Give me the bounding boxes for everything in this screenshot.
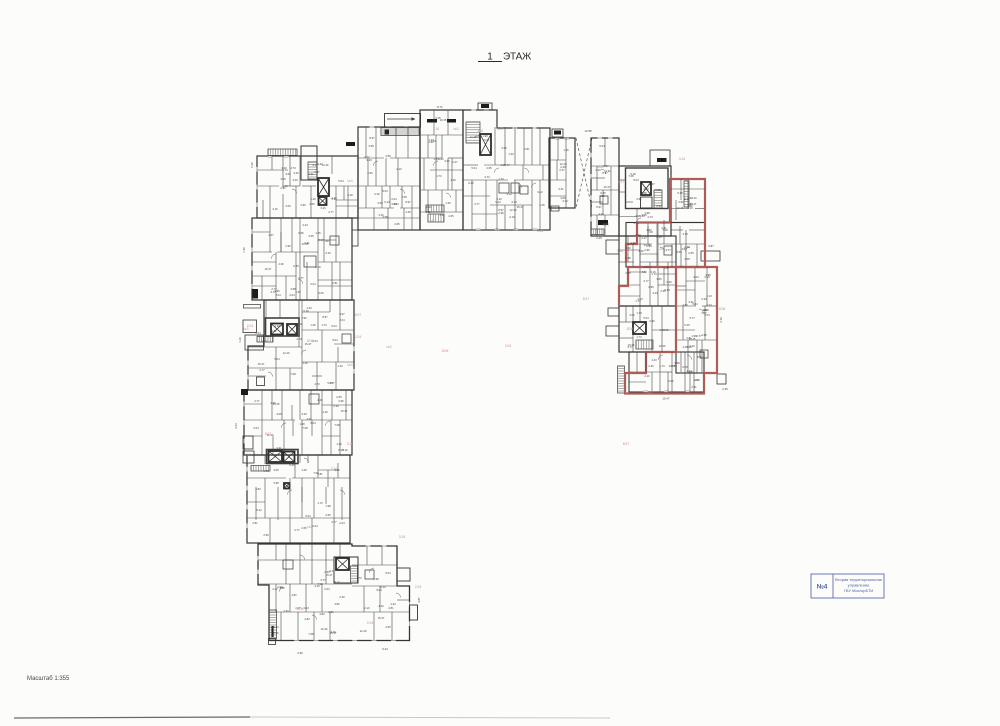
svg-text:2.47: 2.47 [452, 160, 458, 164]
svg-text:2.77: 2.77 [331, 520, 337, 524]
svg-text:2.65: 2.65 [625, 271, 631, 275]
svg-text:3.16: 3.16 [617, 249, 623, 253]
svg-text:3.31: 3.31 [306, 417, 312, 421]
svg-text:10.35: 10.35 [440, 118, 447, 122]
svg-text:2.10: 2.10 [509, 215, 515, 219]
svg-text:2.10: 2.10 [637, 297, 643, 301]
svg-text:10.35: 10.35 [302, 242, 309, 246]
svg-text:4.43: 4.43 [390, 602, 396, 606]
svg-text:2.81: 2.81 [678, 200, 684, 204]
svg-text:3.31: 3.31 [425, 210, 431, 214]
svg-text:3.40: 3.40 [282, 184, 288, 188]
svg-text:8.97: 8.97 [583, 297, 589, 301]
svg-text:4.82: 4.82 [319, 612, 325, 616]
svg-text:3.16: 3.16 [325, 251, 331, 255]
svg-text:2.81: 2.81 [686, 336, 692, 340]
svg-text:2.65: 2.65 [394, 222, 400, 226]
svg-text:12.40: 12.40 [322, 163, 329, 167]
svg-text:3.16: 3.16 [312, 163, 318, 167]
svg-text:7.08: 7.08 [662, 228, 668, 232]
svg-text:2.81: 2.81 [332, 281, 338, 285]
svg-text:4.73: 4.73 [314, 382, 320, 386]
svg-text:7.08: 7.08 [628, 174, 634, 178]
svg-text:3.77: 3.77 [643, 279, 649, 283]
svg-text:2.96: 2.96 [668, 379, 674, 383]
svg-text:2.77: 2.77 [254, 399, 260, 403]
svg-text:5.04: 5.04 [633, 178, 639, 182]
svg-text:3.05: 3.05 [285, 204, 291, 208]
svg-text:3.40: 3.40 [281, 166, 287, 170]
svg-text:1.73: 1.73 [356, 576, 362, 580]
svg-text:15.47: 15.47 [604, 185, 611, 189]
svg-text:4.82: 4.82 [255, 487, 261, 491]
svg-text:№3: №3 [307, 525, 312, 529]
svg-text:10.35: 10.35 [483, 138, 490, 142]
svg-text:2.04: 2.04 [324, 587, 330, 591]
svg-text:6.25: 6.25 [684, 323, 690, 327]
svg-text:3.05: 3.05 [560, 196, 566, 200]
svg-text:№3: №3 [386, 345, 391, 349]
svg-text:1.40: 1.40 [508, 152, 514, 156]
svg-text:8.97: 8.97 [405, 200, 411, 204]
svg-text:15.47: 15.47 [341, 409, 348, 413]
svg-text:2.81: 2.81 [252, 521, 258, 525]
svg-text:2.47: 2.47 [268, 233, 274, 237]
svg-text:15.47: 15.47 [378, 616, 385, 620]
svg-text:1.40: 1.40 [322, 410, 328, 414]
svg-text:2.77: 2.77 [298, 276, 304, 280]
svg-text:15.47: 15.47 [517, 205, 524, 209]
svg-text:2.04: 2.04 [275, 293, 281, 297]
svg-text:3.40: 3.40 [292, 178, 298, 182]
svg-text:3.58: 3.58 [401, 195, 407, 199]
svg-text:4.82: 4.82 [279, 586, 285, 590]
svg-text:8.97: 8.97 [265, 432, 271, 436]
svg-text:2.04: 2.04 [339, 318, 345, 322]
svg-text:5.04: 5.04 [310, 421, 316, 425]
svg-text:12.40: 12.40 [321, 627, 328, 631]
svg-text:2.96: 2.96 [644, 248, 650, 252]
svg-text:4.82: 4.82 [641, 270, 647, 274]
svg-text:3.16: 3.16 [244, 453, 250, 457]
svg-text:№3: №3 [647, 391, 652, 395]
svg-text:5.04: 5.04 [471, 166, 477, 170]
svg-text:ГБУ МосгорБТИ: ГБУ МосгорБТИ [844, 588, 874, 593]
svg-text:7.08: 7.08 [290, 372, 296, 376]
svg-text:3.05: 3.05 [273, 468, 279, 472]
svg-text:8.97: 8.97 [355, 313, 361, 317]
svg-text:1.98: 1.98 [325, 504, 331, 508]
svg-text:3.58: 3.58 [377, 201, 383, 205]
svg-text:2.96: 2.96 [367, 171, 373, 175]
svg-text:3.16: 3.16 [433, 127, 439, 131]
svg-text:3.58: 3.58 [273, 481, 279, 485]
svg-text:1.73: 1.73 [261, 339, 267, 343]
svg-text:2.10: 2.10 [644, 374, 650, 378]
svg-text:3.16: 3.16 [679, 157, 685, 161]
svg-text:3.77: 3.77 [270, 290, 276, 294]
svg-text:2.47: 2.47 [314, 170, 320, 174]
svg-text:9.12: 9.12 [334, 580, 340, 584]
svg-text:4.73: 4.73 [296, 337, 302, 341]
svg-text:2.96: 2.96 [649, 319, 655, 323]
svg-text:5.04: 5.04 [273, 625, 279, 629]
svg-text:5.04: 5.04 [382, 189, 388, 193]
svg-text:1.73: 1.73 [430, 139, 436, 143]
svg-text:5.18: 5.18 [331, 197, 337, 201]
svg-text:6.25: 6.25 [539, 203, 545, 207]
svg-text:7.08: 7.08 [308, 632, 314, 636]
svg-text:1БЖ: 1БЖ [627, 327, 634, 331]
svg-text:1.25: 1.25 [302, 361, 308, 365]
svg-text:7.08: 7.08 [334, 423, 340, 427]
svg-text:ЭТАЖ: ЭТАЖ [503, 52, 532, 63]
svg-text:5.04: 5.04 [376, 588, 382, 592]
svg-text:4.73: 4.73 [263, 469, 269, 473]
svg-text:5.40: 5.40 [250, 162, 254, 168]
svg-text:2.81: 2.81 [388, 606, 394, 610]
svg-text:2.77: 2.77 [294, 528, 300, 532]
svg-text:3.31: 3.31 [605, 169, 611, 173]
svg-text:1.40: 1.40 [450, 178, 456, 182]
svg-text:1.98: 1.98 [373, 577, 379, 581]
svg-text:4.82: 4.82 [271, 329, 277, 333]
svg-text:8.97: 8.97 [596, 205, 602, 209]
svg-text:3.40: 3.40 [635, 233, 641, 237]
svg-text:3.05: 3.05 [635, 214, 641, 218]
svg-text:2.04: 2.04 [310, 282, 316, 286]
svg-text:3.05: 3.05 [318, 291, 324, 295]
svg-text:8.97: 8.97 [322, 315, 328, 319]
svg-text:1.25: 1.25 [405, 210, 411, 214]
svg-text:3.16: 3.16 [320, 206, 326, 210]
svg-text:№4: №4 [817, 584, 828, 591]
svg-text:2.65: 2.65 [630, 241, 636, 245]
svg-text:3.58: 3.58 [385, 154, 391, 158]
svg-text:1.73: 1.73 [636, 311, 642, 315]
svg-text:4.43: 4.43 [302, 223, 308, 227]
svg-text:3.87: 3.87 [708, 244, 714, 248]
svg-text:9.12: 9.12 [537, 190, 543, 194]
svg-text:1БЖ: 1БЖ [307, 339, 314, 343]
svg-text:2.30: 2.30 [324, 570, 330, 574]
svg-text:3.40: 3.40 [293, 171, 299, 175]
svg-text:7.40: 7.40 [242, 247, 246, 253]
svg-text:8.97: 8.97 [369, 136, 375, 140]
svg-text:№3: №3 [347, 363, 352, 367]
svg-text:2.30: 2.30 [333, 404, 339, 408]
svg-text:2.96: 2.96 [648, 285, 654, 289]
svg-text:6.23: 6.23 [382, 647, 388, 651]
svg-text:2.04: 2.04 [355, 335, 361, 339]
svg-text:2.77: 2.77 [328, 210, 334, 214]
svg-text:1.98: 1.98 [482, 134, 488, 138]
svg-text:3.16: 3.16 [496, 197, 502, 201]
svg-text:3.16: 3.16 [506, 192, 512, 196]
svg-text:1.98: 1.98 [625, 256, 631, 260]
svg-text:1.25: 1.25 [336, 442, 342, 446]
svg-text:4.73: 4.73 [643, 187, 649, 191]
svg-text:5.04: 5.04 [692, 302, 698, 306]
svg-text:2.30: 2.30 [560, 165, 566, 169]
svg-text:8.97: 8.97 [603, 164, 609, 168]
svg-text:3.16: 3.16 [657, 247, 663, 251]
svg-text:3.16: 3.16 [537, 229, 543, 233]
svg-text:1.73: 1.73 [636, 335, 642, 339]
svg-text:2.65: 2.65 [309, 202, 315, 206]
svg-text:2.10: 2.10 [396, 167, 402, 171]
svg-text:3.63: 3.63 [234, 423, 238, 429]
svg-text:4.73: 4.73 [633, 221, 639, 225]
svg-text:6.25: 6.25 [468, 181, 474, 185]
svg-text:3.31: 3.31 [558, 187, 564, 191]
svg-text:2.04: 2.04 [247, 324, 253, 328]
svg-text:3.31: 3.31 [308, 172, 314, 176]
svg-text:2.47: 2.47 [687, 202, 693, 206]
svg-text:управление: управление [848, 583, 871, 588]
svg-text:2.04: 2.04 [367, 621, 373, 625]
svg-text:12.40: 12.40 [360, 629, 367, 633]
svg-text:3.16: 3.16 [399, 535, 405, 539]
svg-text:4.82: 4.82 [646, 228, 652, 232]
svg-text:5.04: 5.04 [643, 316, 649, 320]
svg-text:2.77: 2.77 [259, 368, 265, 372]
svg-text:6.25: 6.25 [682, 365, 688, 369]
svg-text:6.25: 6.25 [289, 463, 295, 467]
svg-text:1.98: 1.98 [644, 211, 650, 215]
svg-text:2.30: 2.30 [648, 364, 654, 368]
svg-text:2.96: 2.96 [501, 146, 507, 150]
svg-text:1: 1 [487, 52, 493, 63]
svg-text:3.16: 3.16 [342, 448, 348, 452]
svg-text:3.31: 3.31 [687, 196, 693, 200]
svg-text:2.30: 2.30 [278, 262, 284, 266]
svg-text:3.05: 3.05 [280, 177, 286, 181]
svg-text:2.04: 2.04 [255, 331, 261, 335]
svg-text:3.77: 3.77 [320, 578, 326, 582]
svg-text:2.96: 2.96 [338, 399, 344, 403]
svg-text:2.47: 2.47 [272, 587, 278, 591]
svg-text:4.43: 4.43 [652, 291, 658, 295]
svg-text:№3: №3 [347, 179, 352, 183]
svg-text:2.96: 2.96 [263, 533, 269, 537]
svg-text:3.77: 3.77 [689, 316, 695, 320]
svg-text:1.98: 1.98 [701, 333, 707, 337]
svg-text:6.25: 6.25 [600, 191, 606, 195]
svg-text:3.05: 3.05 [656, 277, 662, 281]
svg-text:2.04: 2.04 [427, 219, 433, 223]
svg-text:1.40: 1.40 [693, 378, 699, 382]
svg-text:2.77: 2.77 [504, 163, 510, 167]
svg-text:4.82: 4.82 [334, 602, 340, 606]
svg-text:2.81: 2.81 [688, 370, 694, 374]
svg-text:1.73: 1.73 [321, 323, 327, 327]
svg-text:1.25: 1.25 [301, 468, 307, 472]
svg-text:4.43: 4.43 [598, 212, 604, 216]
svg-text:3.31: 3.31 [439, 213, 445, 217]
svg-text:2.96: 2.96 [301, 316, 307, 320]
svg-text:2.04: 2.04 [391, 197, 397, 201]
svg-text:2.10: 2.10 [687, 206, 693, 210]
svg-text:3.40: 3.40 [682, 345, 688, 349]
svg-text:2.47: 2.47 [641, 236, 647, 240]
svg-text:8.97: 8.97 [603, 223, 609, 227]
svg-text:3.31: 3.31 [276, 446, 282, 450]
svg-text:6.25: 6.25 [293, 264, 299, 268]
svg-text:3.77: 3.77 [278, 324, 284, 328]
svg-text:7.08: 7.08 [641, 191, 647, 195]
svg-text:10.35: 10.35 [628, 343, 635, 347]
svg-text:2.30: 2.30 [374, 192, 380, 196]
svg-text:3.16: 3.16 [331, 467, 337, 471]
svg-text:2.30: 2.30 [660, 289, 666, 293]
svg-text:15.47: 15.47 [258, 362, 265, 366]
svg-text:2.10: 2.10 [426, 205, 432, 209]
svg-text:3.58: 3.58 [368, 144, 374, 148]
svg-text:5.18: 5.18 [303, 309, 309, 313]
svg-text:1.73: 1.73 [498, 177, 504, 181]
svg-text:5.04: 5.04 [305, 514, 311, 518]
svg-text:1.40: 1.40 [663, 266, 669, 270]
svg-text:1БЖ: 1БЖ [719, 307, 726, 311]
svg-text:2.04: 2.04 [339, 521, 345, 525]
svg-text:8.97: 8.97 [498, 208, 504, 212]
svg-text:12.40: 12.40 [283, 351, 290, 355]
svg-text:10.35: 10.35 [644, 243, 651, 247]
svg-text:3.40: 3.40 [314, 584, 320, 588]
svg-text:2.65: 2.65 [325, 513, 331, 517]
svg-text:3.40: 3.40 [301, 412, 307, 416]
svg-text:2.65: 2.65 [385, 625, 391, 629]
svg-text:8.97: 8.97 [318, 238, 324, 242]
svg-text:8.97: 8.97 [656, 204, 662, 208]
svg-text:2.29: 2.29 [596, 236, 602, 240]
svg-text:Масштаб 1:355: Масштаб 1:355 [27, 676, 70, 682]
svg-text:2.04: 2.04 [312, 524, 318, 528]
svg-text:5.04: 5.04 [331, 324, 337, 328]
svg-text:5.18: 5.18 [656, 235, 662, 239]
svg-text:10.35: 10.35 [677, 206, 684, 210]
svg-text:1БЖ: 1БЖ [597, 165, 604, 169]
svg-text:15.47: 15.47 [663, 397, 670, 401]
svg-text:3.16: 3.16 [704, 275, 710, 279]
svg-text:4.82: 4.82 [291, 593, 297, 597]
svg-text:3.16: 3.16 [477, 129, 483, 133]
svg-text:4.73: 4.73 [682, 232, 688, 236]
svg-text:1.40: 1.40 [310, 197, 316, 201]
svg-text:3.40: 3.40 [366, 158, 372, 162]
svg-text:4.73: 4.73 [511, 200, 517, 204]
svg-text:2.10: 2.10 [706, 294, 712, 298]
svg-text:3.05: 3.05 [308, 234, 314, 238]
svg-text:10.35: 10.35 [273, 402, 280, 406]
svg-text:1.98: 1.98 [299, 422, 305, 426]
svg-text:3.05: 3.05 [276, 460, 282, 464]
svg-text:3.77: 3.77 [665, 248, 671, 252]
svg-text:4.43: 4.43 [703, 308, 709, 312]
svg-text:4.82: 4.82 [438, 157, 444, 161]
svg-text:2.81: 2.81 [328, 610, 334, 614]
svg-text:7.08: 7.08 [323, 239, 329, 243]
svg-text:2.47: 2.47 [649, 182, 655, 186]
svg-text:2.65: 2.65 [301, 526, 307, 530]
svg-text:5.04: 5.04 [599, 144, 605, 148]
svg-text:2.30: 2.30 [283, 609, 289, 613]
svg-text:2.04: 2.04 [393, 202, 399, 206]
svg-text:2.04: 2.04 [505, 344, 511, 348]
svg-text:1.40: 1.40 [337, 364, 343, 368]
svg-text:2.04: 2.04 [704, 313, 710, 317]
svg-text:1.10: 1.10 [238, 337, 242, 343]
svg-text:8.97: 8.97 [618, 180, 624, 184]
svg-text:6.25: 6.25 [298, 231, 304, 235]
svg-text:2.10: 2.10 [297, 322, 303, 326]
svg-text:1.73: 1.73 [659, 364, 665, 368]
svg-text:Вторая территориальная: Вторая территориальная [835, 577, 882, 582]
svg-text:№3: №3 [453, 127, 458, 131]
svg-text:2.30: 2.30 [684, 245, 690, 249]
svg-text:15.47: 15.47 [265, 267, 272, 271]
svg-text:12.40: 12.40 [659, 344, 666, 348]
svg-text:2.96: 2.96 [285, 244, 291, 248]
svg-text:2.65: 2.65 [448, 214, 454, 218]
svg-text:2.36: 2.36 [722, 387, 728, 391]
svg-text:1.40: 1.40 [638, 249, 644, 253]
svg-text:4.43: 4.43 [651, 358, 657, 362]
svg-text:3.40: 3.40 [666, 280, 672, 284]
svg-text:5.04: 5.04 [385, 571, 391, 575]
svg-text:3.77: 3.77 [329, 381, 335, 385]
svg-text:3.16: 3.16 [272, 207, 278, 211]
svg-text:2.04: 2.04 [289, 293, 295, 297]
svg-text:8.71: 8.71 [437, 105, 443, 109]
svg-text:2.65: 2.65 [336, 395, 342, 399]
svg-text:9.12: 9.12 [329, 569, 335, 573]
svg-text:3.19: 3.19 [719, 317, 723, 323]
svg-text:8.97: 8.97 [623, 442, 629, 446]
svg-text:1.73: 1.73 [436, 174, 442, 178]
svg-text:2.81: 2.81 [524, 147, 530, 151]
svg-text:2.10: 2.10 [364, 606, 370, 610]
svg-text:1.25: 1.25 [563, 148, 569, 152]
svg-text:6.25: 6.25 [655, 188, 661, 192]
svg-text:4.43: 4.43 [378, 604, 384, 608]
svg-text:8.97: 8.97 [697, 355, 703, 359]
svg-text:1БЖ: 1БЖ [297, 607, 304, 611]
svg-text:2.04: 2.04 [693, 275, 699, 279]
svg-text:1.25: 1.25 [663, 328, 669, 332]
svg-text:4.43: 4.43 [317, 398, 323, 402]
svg-text:1.73: 1.73 [317, 501, 323, 505]
svg-text:9.12: 9.12 [384, 200, 390, 204]
svg-text:8.97: 8.97 [339, 312, 345, 316]
svg-text:5.04: 5.04 [332, 338, 338, 342]
svg-text:2.96: 2.96 [444, 159, 450, 163]
svg-text:5.18: 5.18 [347, 193, 353, 197]
svg-text:3.05: 3.05 [629, 313, 635, 317]
svg-text:2.96: 2.96 [300, 203, 306, 207]
svg-text:7.08: 7.08 [302, 426, 308, 430]
svg-text:2.77: 2.77 [474, 202, 480, 206]
svg-text:2.65: 2.65 [688, 251, 694, 255]
svg-text:2.65: 2.65 [486, 166, 492, 170]
svg-text:1.25: 1.25 [315, 231, 321, 235]
svg-text:2.04: 2.04 [415, 585, 421, 589]
svg-text:5.04: 5.04 [338, 179, 344, 183]
svg-text:5.04: 5.04 [274, 357, 280, 361]
svg-text:3.05: 3.05 [285, 172, 291, 176]
svg-text:3.40: 3.40 [625, 246, 631, 250]
